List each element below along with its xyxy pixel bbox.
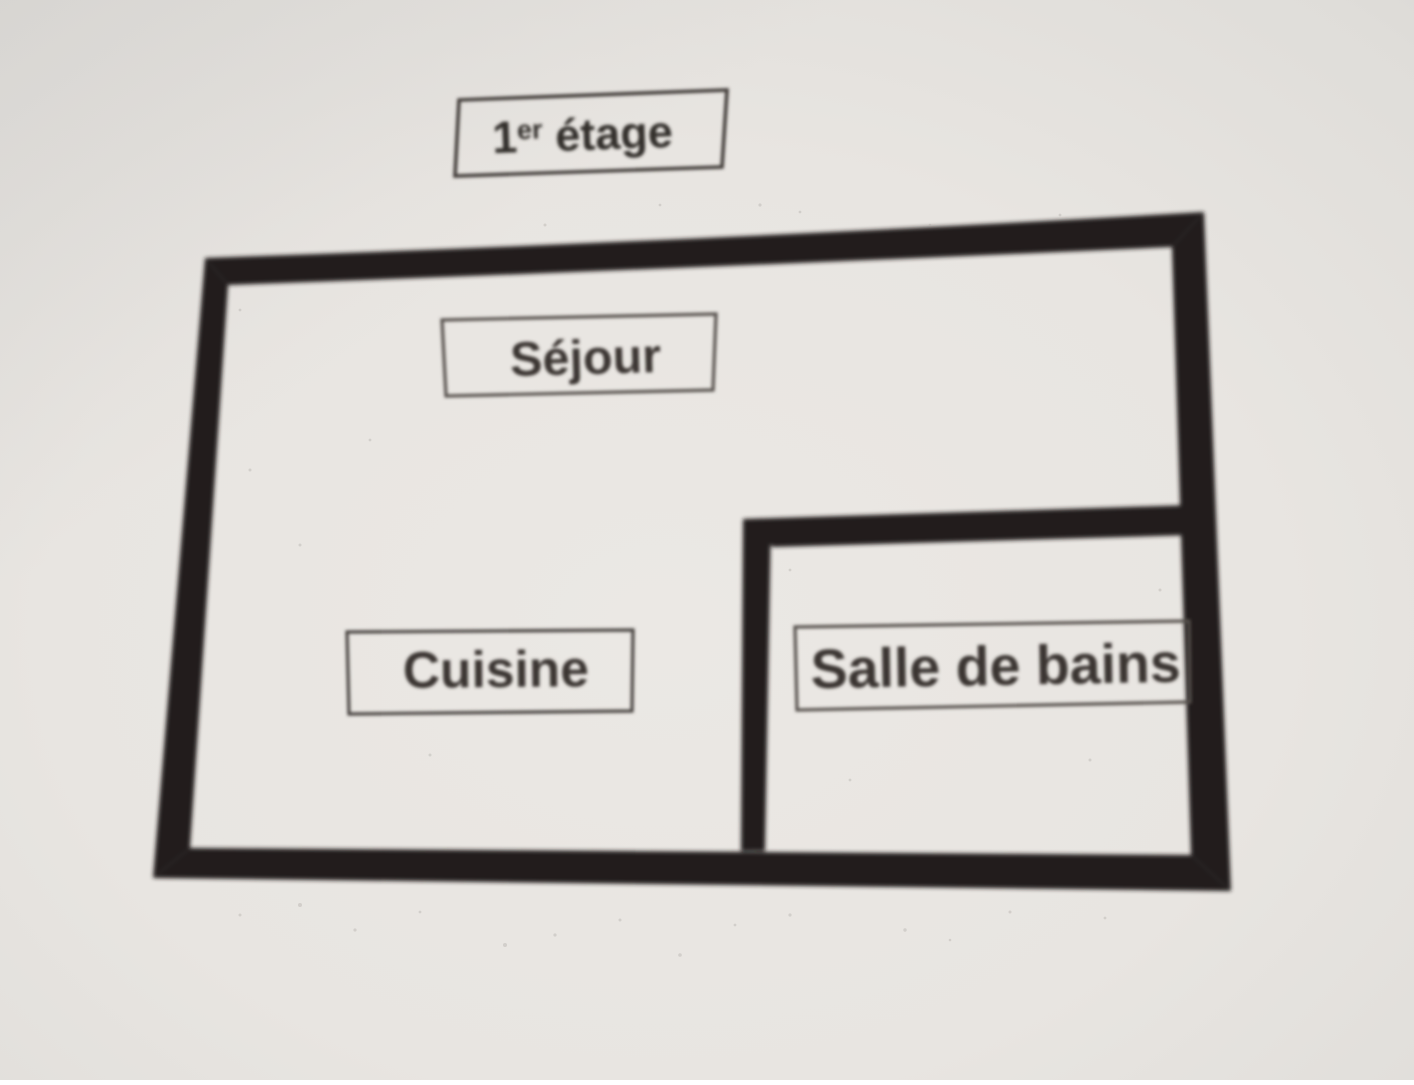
svg-text:Cuisine: Cuisine	[403, 639, 590, 699]
svg-text:Séjour: Séjour	[509, 329, 661, 387]
svg-text:Salle de bains: Salle de bains	[810, 632, 1181, 700]
